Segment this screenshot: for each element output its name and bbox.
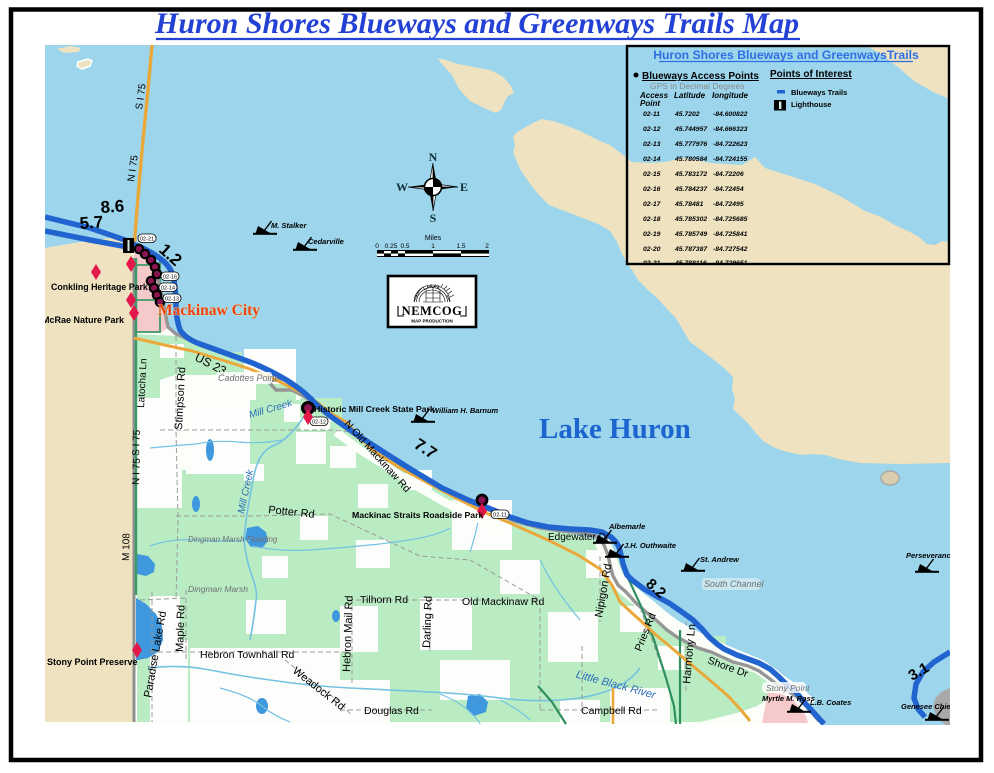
svg-text:L.B. Coates: L.B. Coates	[810, 698, 851, 707]
svg-text:45.785749: 45.785749	[674, 231, 707, 238]
svg-text:-84.72206: -84.72206	[713, 171, 744, 178]
svg-text:1: 1	[431, 243, 435, 250]
svg-text:1.5: 1.5	[456, 243, 465, 250]
svg-text:0.25: 0.25	[385, 243, 398, 250]
svg-text:E: E	[460, 180, 468, 194]
svg-text:M 108: M 108	[121, 533, 132, 561]
svg-text:MAP PRODUCTION: MAP PRODUCTION	[411, 319, 452, 324]
svg-text:Old Mackinaw Rd: Old Mackinaw Rd	[462, 596, 544, 608]
svg-text:Huron Shores Blueways and Gree: Huron Shores Blueways and Greenways Trai…	[154, 7, 799, 40]
svg-text:Stony Point: Stony Point	[766, 683, 810, 693]
svg-text:45.7202: 45.7202	[674, 111, 700, 118]
svg-text:Mackinaw City: Mackinaw City	[158, 302, 260, 319]
svg-text:Dingman Marsh: Dingman Marsh	[188, 584, 248, 594]
svg-text:-84.72495: -84.72495	[713, 201, 744, 208]
svg-text:-84.722623: -84.722623	[713, 141, 748, 148]
svg-text:-84.729651: -84.729651	[713, 260, 748, 267]
svg-text:Lake Huron: Lake Huron	[539, 413, 691, 445]
svg-text:McRae Nature Park: McRae Nature Park	[42, 315, 125, 325]
svg-text:N I 75: N I 75	[131, 458, 143, 485]
svg-text:0.5: 0.5	[400, 243, 409, 250]
svg-text:02-15: 02-15	[643, 171, 661, 178]
svg-text:02-11: 02-11	[643, 111, 660, 118]
svg-text:45.784237: 45.784237	[674, 186, 708, 193]
svg-text:GPS in Decimal Degrees: GPS in Decimal Degrees	[650, 81, 744, 91]
svg-text:St. Andrew: St. Andrew	[700, 555, 740, 564]
svg-text:Miles: Miles	[425, 235, 442, 242]
svg-text:-84.600822: -84.600822	[713, 111, 748, 118]
svg-text:02-18: 02-18	[643, 216, 661, 223]
svg-text:02-17: 02-17	[643, 201, 662, 208]
svg-text:02-16: 02-16	[643, 186, 661, 193]
svg-text:S: S	[430, 211, 437, 225]
svg-text:02-13: 02-13	[643, 141, 661, 148]
svg-text:45.785302: 45.785302	[674, 216, 707, 223]
svg-text:02-19: 02-19	[643, 231, 661, 238]
svg-text:-84.72454: -84.72454	[713, 186, 744, 193]
svg-text:-84.724155: -84.724155	[713, 156, 748, 163]
svg-text:Perseverance: Perseverance	[906, 551, 955, 560]
svg-text:Dingman Marsh Flooding: Dingman Marsh Flooding	[188, 535, 278, 544]
svg-text:45.744957: 45.744957	[674, 126, 708, 133]
svg-text:02-11: 02-11	[493, 513, 507, 519]
svg-text:2: 2	[485, 243, 489, 250]
svg-text:45.78481: 45.78481	[674, 201, 704, 208]
svg-text:-84.727542: -84.727542	[713, 246, 748, 253]
svg-text:5.7: 5.7	[79, 212, 104, 233]
svg-text:02-12: 02-12	[643, 126, 661, 133]
svg-text:Stony Point Preserve: Stony Point Preserve	[47, 657, 138, 667]
svg-text:William H. Barnum: William H. Barnum	[432, 406, 499, 415]
svg-text:Campbell Rd: Campbell Rd	[581, 705, 642, 717]
svg-text:02-21: 02-21	[643, 260, 661, 267]
svg-text:Cedarville: Cedarville	[308, 237, 344, 246]
svg-text:02-20: 02-20	[643, 246, 661, 253]
svg-text:02-14: 02-14	[161, 286, 175, 292]
svg-text:Points of Interest: Points of Interest	[770, 69, 852, 80]
svg-text:Douglas Rd: Douglas Rd	[364, 705, 419, 717]
svg-text:Tilhorn Rd: Tilhorn Rd	[360, 594, 408, 606]
svg-text:Historic Mill Creek State Park: Historic Mill Creek State Park	[314, 404, 435, 414]
svg-text:-84.666323: -84.666323	[713, 126, 748, 133]
svg-text:South Channel: South Channel	[704, 579, 765, 589]
svg-text:Hebron Townhall Rd: Hebron Townhall Rd	[200, 649, 295, 661]
svg-text:Latitude: Latitude	[674, 91, 706, 100]
svg-text:Mackinac Straits Roadside Park: Mackinac Straits Roadside Park	[352, 510, 484, 520]
svg-text:Point: Point	[640, 99, 660, 108]
svg-text:45.783172: 45.783172	[674, 171, 707, 178]
svg-text:0: 0	[375, 243, 379, 250]
svg-text:02-21: 02-21	[140, 237, 154, 243]
svg-text:NEMCOG: NEMCOG	[402, 304, 463, 318]
svg-text:J.H. Outhwaite: J.H. Outhwaite	[624, 541, 676, 550]
svg-text:45.780584: 45.780584	[674, 156, 707, 163]
svg-text:Lighthouse: Lighthouse	[791, 100, 831, 109]
svg-text:Cadottes Point: Cadottes Point	[218, 373, 278, 383]
svg-text:Huron Shores Blueways and Gree: Huron Shores Blueways and GreenwaysTrail…	[653, 48, 919, 62]
svg-text:8.6: 8.6	[100, 196, 125, 217]
svg-text:Genesee Chief: Genesee Chief	[901, 702, 955, 711]
svg-text:02-12: 02-12	[312, 420, 326, 426]
svg-text:Maple Rd: Maple Rd	[174, 605, 188, 652]
svg-text:-84.725685: -84.725685	[713, 216, 748, 223]
svg-text:W: W	[396, 180, 408, 194]
svg-text:Albemarle: Albemarle	[608, 522, 645, 531]
svg-text:Conkling Heritage Park: Conkling Heritage Park	[51, 282, 148, 292]
svg-text:-84.725841: -84.725841	[713, 231, 748, 238]
svg-text:N: N	[429, 150, 438, 164]
svg-text:Myrtle M. Ross: Myrtle M. Ross	[762, 694, 815, 703]
svg-text:M. Stalker: M. Stalker	[271, 221, 308, 230]
svg-text:02-14: 02-14	[643, 156, 661, 163]
svg-text:Blueways Trails: Blueways Trails	[791, 88, 847, 97]
svg-text:45.787387: 45.787387	[674, 246, 708, 253]
svg-text:longitude: longitude	[712, 91, 749, 100]
svg-text:S I 75: S I 75	[131, 429, 143, 456]
svg-text:45.777976: 45.777976	[674, 141, 707, 148]
svg-text:45.788116: 45.788116	[674, 260, 707, 267]
svg-text:Darling Rd: Darling Rd	[421, 596, 435, 648]
svg-text:02-16: 02-16	[163, 275, 177, 281]
